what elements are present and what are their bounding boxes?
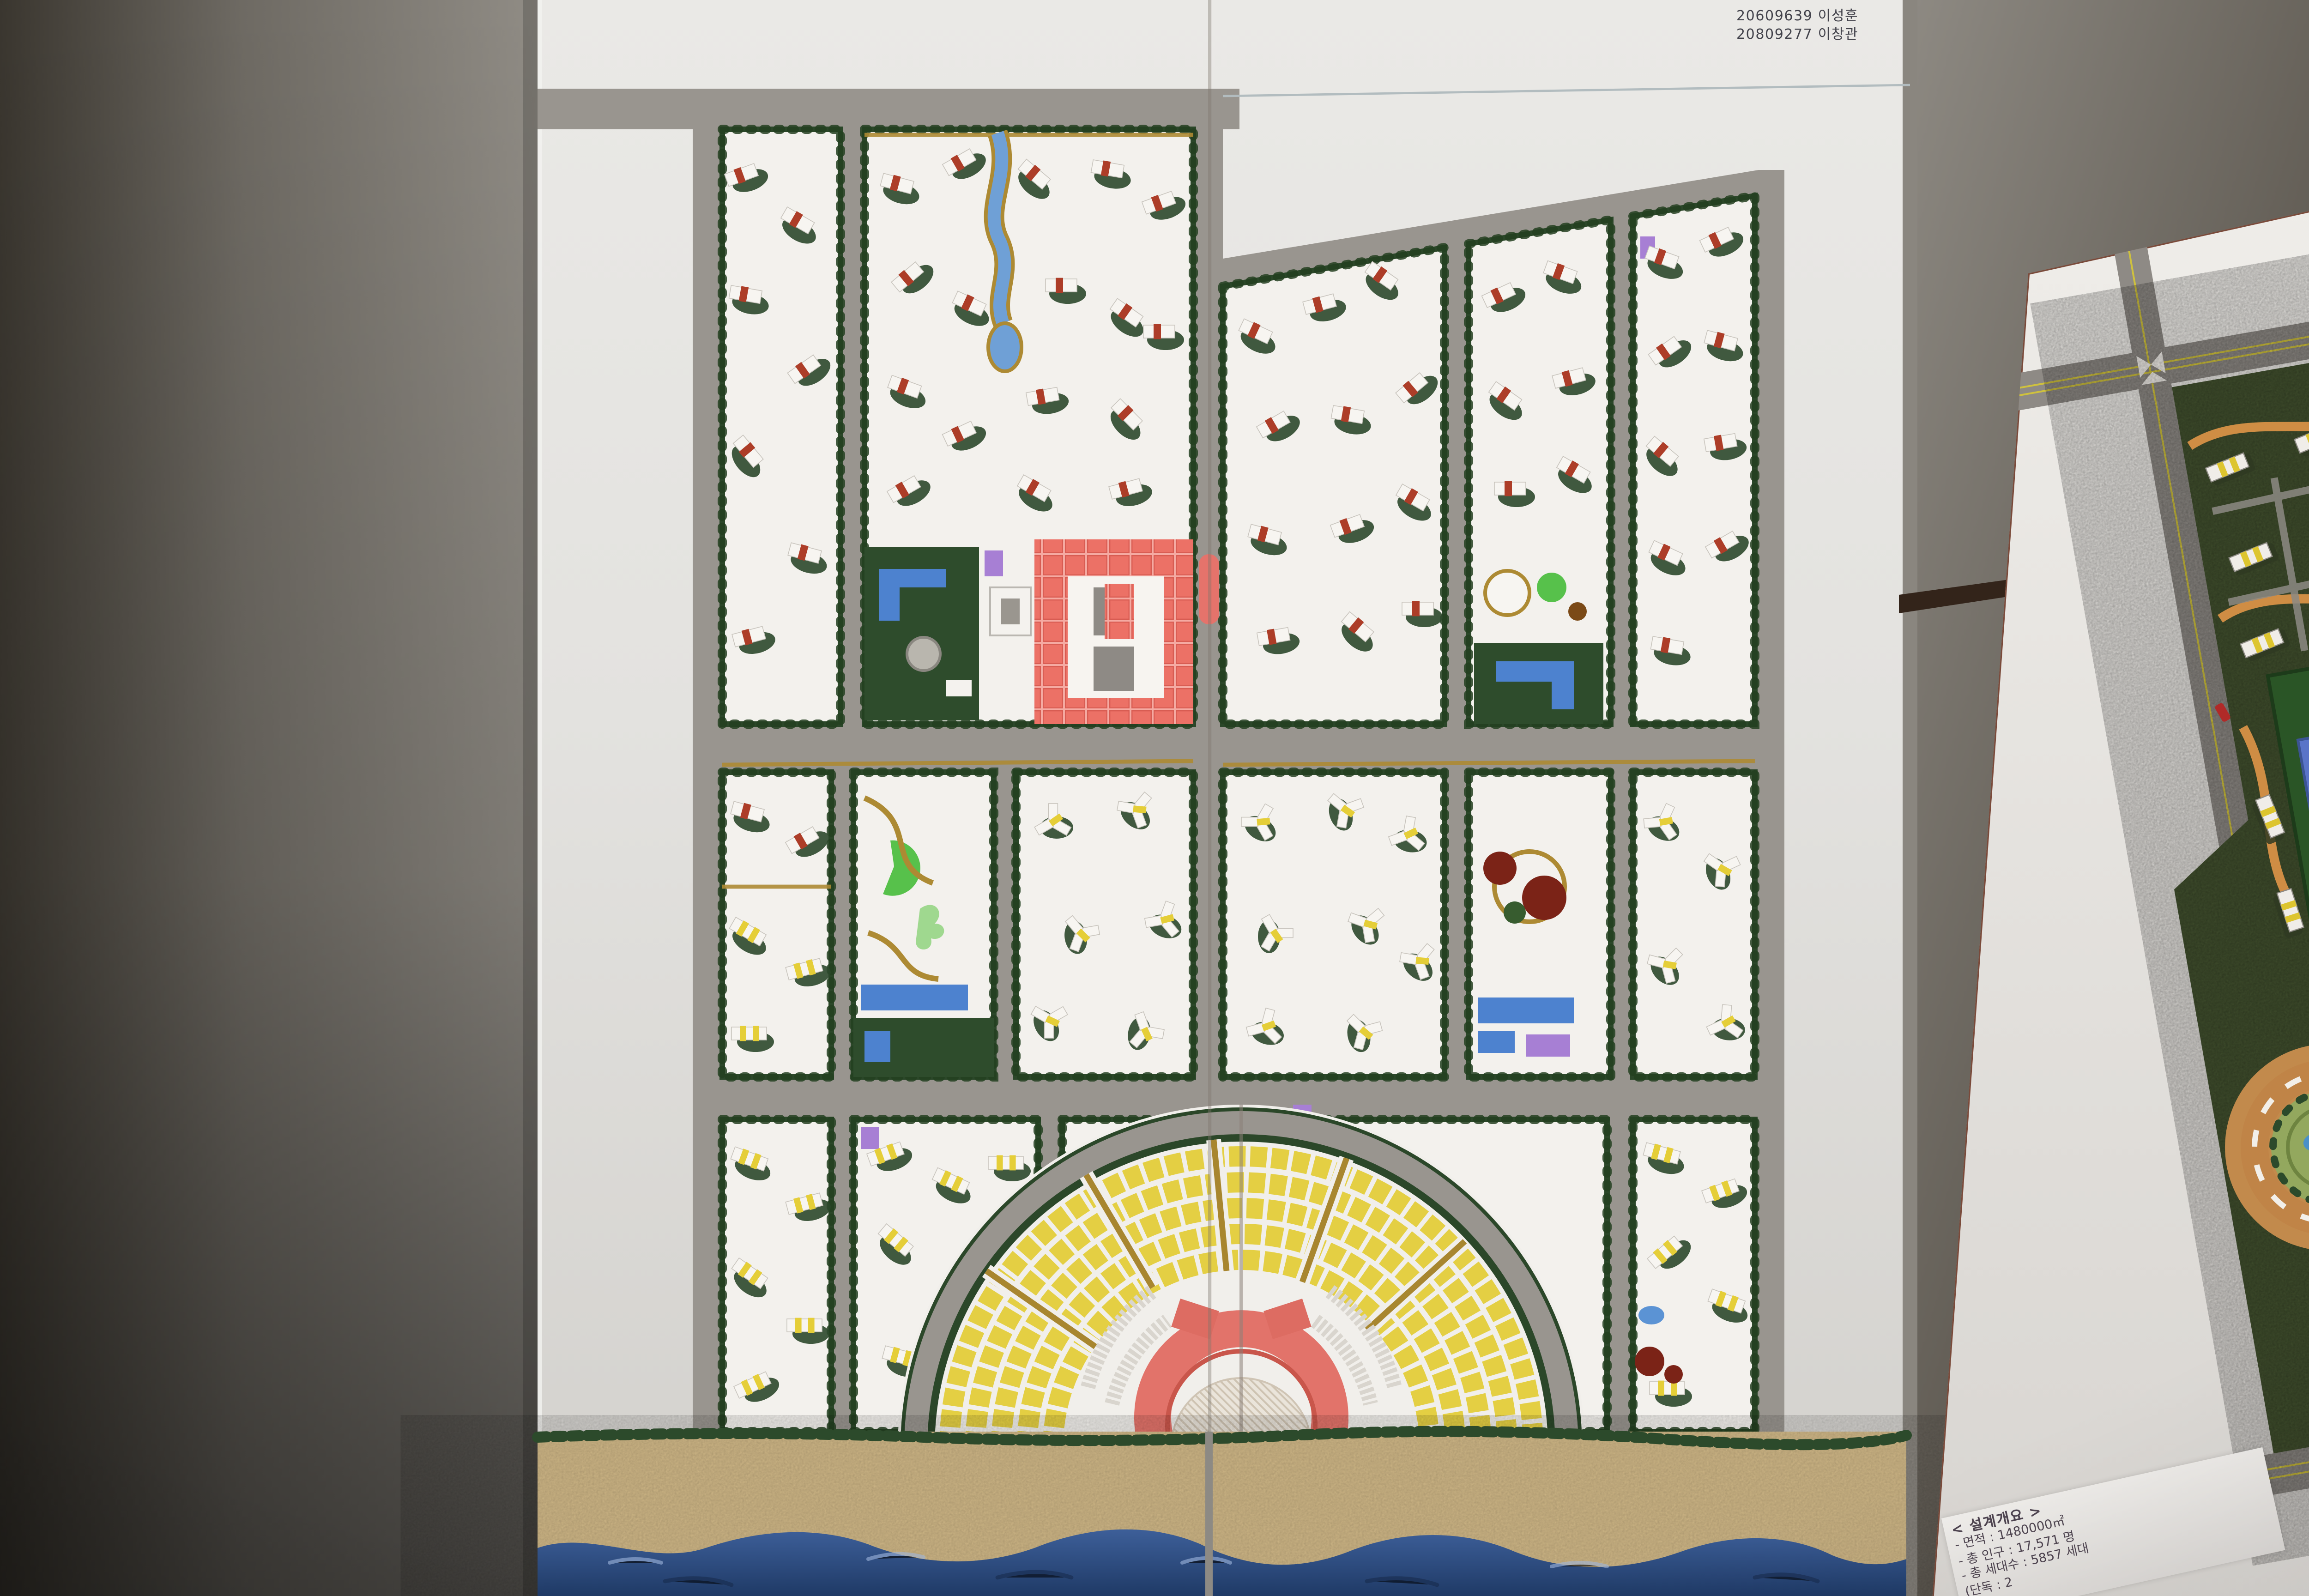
scene-render [0,0,2309,1596]
photo-scene: 20609639 이성훈 20809277 이창관 < 설계개요 > - 면적 … [0,0,2309,1596]
main-board-edge [1903,0,1917,1596]
main-board [538,0,1917,1596]
seam-rod [1205,1432,1213,1596]
city-blocks [722,129,1755,1596]
student-id-line: 20609639 이성훈 [1736,7,1921,25]
student-ids: 20609639 이성훈 20809277 이창관 [1736,7,1921,42]
student-id-line: 20809277 이창관 [1736,25,1921,42]
board-seam [1208,0,1211,1432]
red-tree-cluster [1635,1347,1664,1376]
commercial-complex [1034,539,1219,724]
board-shadow-on-wall [523,0,538,1596]
